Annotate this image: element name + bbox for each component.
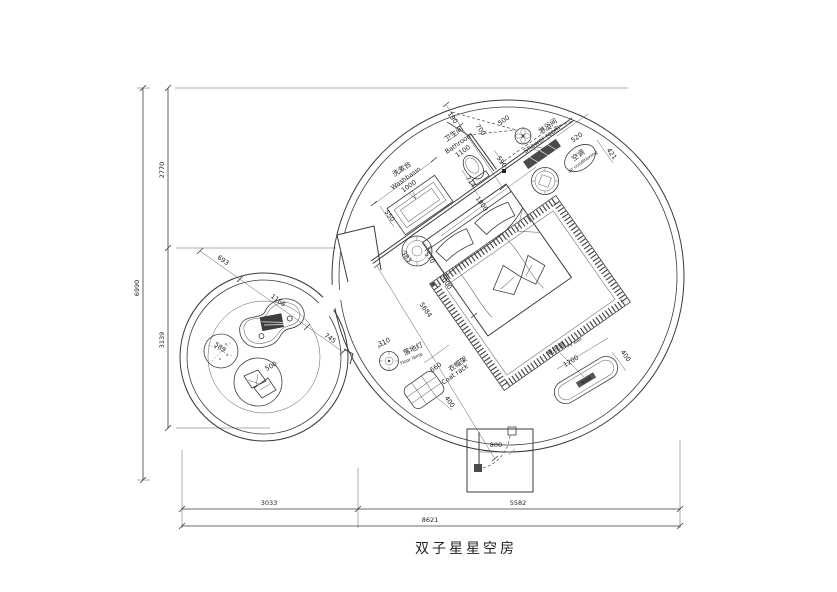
drawing-title: 双子星星空房: [415, 541, 517, 557]
dim-590-marker: [502, 169, 506, 173]
air-conditioner: 空调 air conditioning: [559, 138, 601, 177]
dim-3139-label: 3139: [158, 332, 166, 349]
dim-5684-label: 5684: [418, 301, 434, 319]
dim-570-label: 570: [423, 250, 437, 265]
dim-590-label: 590: [495, 154, 509, 169]
door-hinge-icon: [508, 427, 516, 435]
dim-500-seat-label: 500: [264, 360, 279, 373]
dim-383-label: 383: [400, 249, 414, 264]
dim-190-label: 190: [446, 110, 460, 125]
dim-5582-label: 5582: [510, 499, 527, 507]
dim-660-label: 660: [428, 361, 443, 375]
pillow-left: [434, 227, 476, 264]
dim-310-label: 310: [377, 336, 392, 349]
dim-800-label: 800: [490, 441, 502, 449]
bathroom-labels: 洗漱台 Washbasin 1000 卫生间 Bathroom 1100 淋浴间…: [383, 110, 619, 223]
dim-8621-label: 8621: [422, 516, 439, 524]
dim-421-label: 421: [605, 146, 619, 161]
bottom-dimension-chain: 3033 5582 8621: [179, 499, 683, 529]
dim-693-label: 693: [216, 254, 231, 268]
folded-blanket: [485, 246, 550, 306]
shower-head-icon: [515, 128, 531, 144]
round-seat: 500: [234, 358, 282, 406]
dim-400-tv-label: 400: [619, 348, 633, 363]
dim-700-label: 700: [474, 122, 488, 137]
door-handle-icon: [474, 464, 482, 472]
dim-400-coat-label: 400: [443, 394, 457, 409]
floor-plan-page: 6990 2770 3139 3033 5582 8621 800: [0, 0, 837, 592]
dim-1200-label: 1200: [562, 354, 580, 369]
entry-vestibule: 800: [467, 427, 533, 492]
dim-3033-label: 3033: [261, 499, 278, 507]
floor-plan-canvas: 6990 2770 3139 3033 5582 8621 800: [0, 0, 837, 592]
dim-2770-label: 2770: [158, 162, 166, 179]
dim-6990-label: 6990: [133, 280, 141, 297]
bedroom-labels: 383 570 2000 5684 310 落地灯 Floor lamp 660…: [377, 249, 633, 409]
dim-745-label: 745: [323, 332, 338, 346]
round-pouf: 589: [204, 334, 238, 368]
dim-2000-label: 2000: [438, 273, 454, 291]
lounge-doorway-gap: [307, 284, 345, 329]
main-room-circle: [332, 100, 684, 452]
left-dimension-chain: 6990 2770 3139: [133, 85, 171, 483]
coat-rack: [402, 369, 446, 411]
tv-cabinet: 电视柜: [550, 352, 622, 408]
dim-589-label: 589: [213, 341, 228, 355]
ceiling-fan-icon: [532, 168, 559, 195]
tv-wall-label-cn: 电视墙: [544, 340, 567, 359]
dim-520-label: 520: [569, 131, 584, 145]
shower-area: [500, 121, 573, 195]
dim-500-door-label: 500: [496, 114, 511, 128]
